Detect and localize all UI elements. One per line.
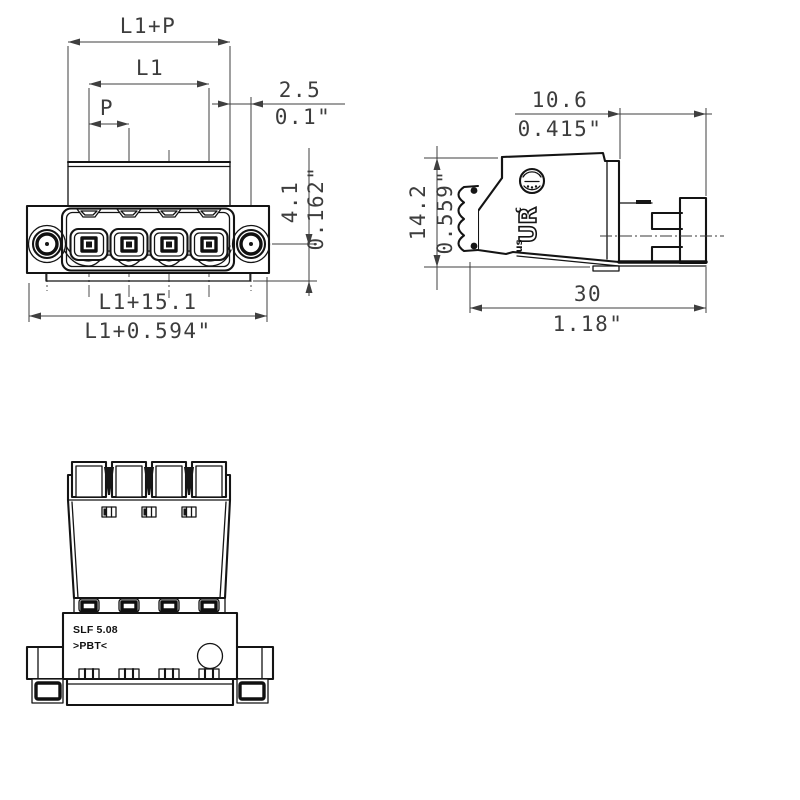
- side-view: c UR us 10.6 0.415" 14.2 0: [406, 88, 724, 336]
- tab-3: [159, 669, 179, 679]
- dim-side-top: 10.6 0.415": [515, 88, 712, 141]
- rear-flange-left: [27, 647, 63, 679]
- latch-slot-4: [199, 599, 219, 612]
- dim-p: P: [89, 96, 129, 128]
- dim-side-height-mm: 14.2: [406, 184, 430, 241]
- rear-latch-band: [74, 598, 225, 613]
- dim-side-length: 30 1.18": [470, 282, 706, 336]
- vent-1: [102, 507, 116, 517]
- rear-bottom-rail: [67, 679, 233, 705]
- terminal-1: [71, 229, 108, 260]
- latch-slot-2: [119, 599, 139, 612]
- connector-drawing-svg: L1+P L1 P 2.5 0.1" 4.1 0.162": [0, 0, 800, 800]
- dim-l1-plus-p: L1+P: [68, 14, 230, 46]
- front-wire-housing: [68, 162, 230, 206]
- rear-view: SLF 5.08 >PBT<: [27, 462, 273, 705]
- front-view: L1+P L1 P 2.5 0.1" 4.1 0.162": [27, 14, 345, 343]
- rear-foot-right: [237, 679, 268, 703]
- rear-flange-right: [237, 647, 273, 679]
- tab-2: [119, 669, 139, 679]
- dim-l1: L1: [89, 56, 209, 88]
- wire-block-1: [72, 462, 106, 497]
- wire-block-3: [152, 462, 186, 497]
- rear-vents: [102, 507, 196, 517]
- clamp-pivot-top: [471, 187, 478, 194]
- tab-4: [199, 669, 219, 679]
- dim-width-total: L1+15.1 L1+0.594": [29, 290, 267, 343]
- clamp-pivot-bottom: [471, 243, 478, 250]
- ul-us-label: us: [514, 239, 525, 252]
- front-bottom-strip: [46, 273, 250, 281]
- dim-depth-in: 0.162": [304, 166, 328, 251]
- material-label: >PBT<: [73, 640, 107, 652]
- dim-depth: 4.1 0.162": [278, 148, 328, 296]
- rear-tapered-body: [68, 500, 230, 598]
- dim-side-length-mm: 30: [574, 282, 602, 306]
- side-wire-clamp: [459, 186, 479, 251]
- dim-side-top-mm: 10.6: [532, 88, 589, 112]
- terminal-4: [191, 229, 228, 260]
- terminal-2: [111, 229, 148, 260]
- dim-width-total-in: L1+0.594": [84, 319, 211, 343]
- tab-1: [79, 669, 99, 679]
- latch-slot-3: [159, 599, 179, 612]
- dim-pin-offset: 2.5 0.1": [212, 78, 345, 129]
- wire-block-4: [192, 462, 226, 497]
- rear-foot-left: [32, 679, 63, 703]
- type-label: SLF 5.08: [73, 624, 118, 636]
- rear-wire-blocks: [72, 462, 226, 497]
- vent-2: [142, 507, 156, 517]
- dim-p-label: P: [100, 96, 114, 120]
- dim-pin-offset-in: 0.1": [275, 105, 332, 129]
- dim-side-length-in: 1.18": [553, 312, 624, 336]
- latch-slot-1: [79, 599, 99, 612]
- side-body: [478, 153, 619, 266]
- ul-ur-label: UR: [516, 207, 542, 244]
- dim-l1-plus-p-label: L1+P: [120, 14, 177, 38]
- dim-l1-label: L1: [136, 56, 164, 80]
- dim-depth-mm: 4.1: [278, 181, 302, 223]
- technical-drawing-page: L1+P L1 P 2.5 0.1" 4.1 0.162": [0, 0, 800, 800]
- vent-3: [182, 507, 196, 517]
- dim-side-height-in: 0.559": [433, 170, 457, 255]
- dim-width-total-mm: L1+15.1: [98, 290, 197, 314]
- wire-block-2: [112, 462, 146, 497]
- dim-side-height: 14.2 0.559": [406, 146, 457, 290]
- terminal-3: [151, 229, 188, 260]
- dim-pin-offset-mm: 2.5: [279, 78, 321, 102]
- dim-side-top-in: 0.415": [518, 117, 603, 141]
